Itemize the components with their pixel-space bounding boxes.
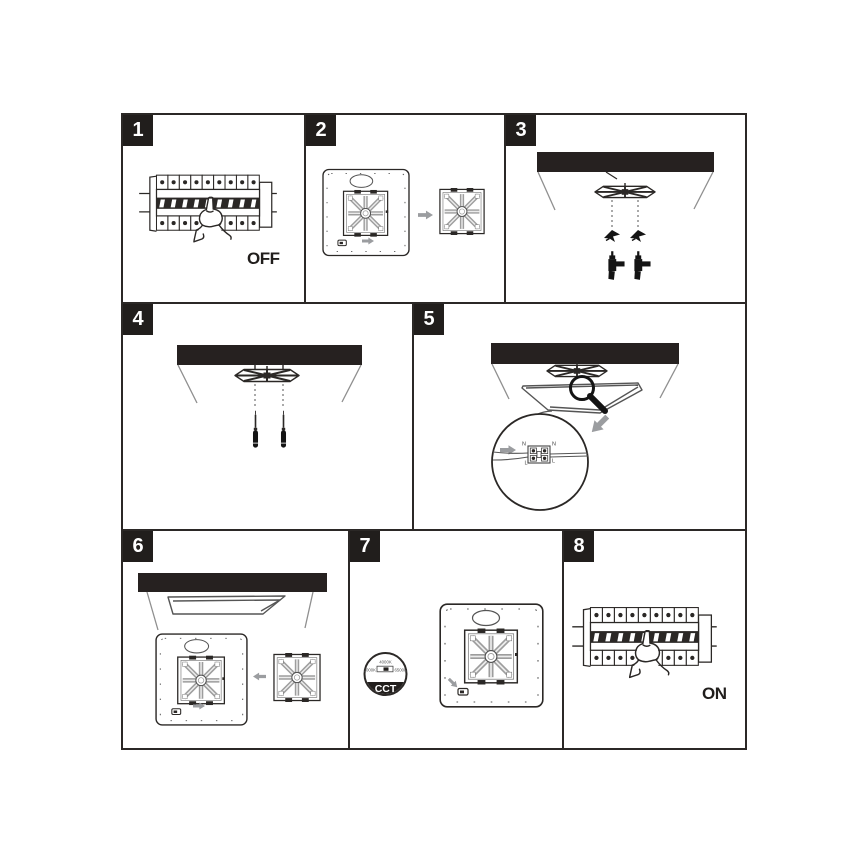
cct-select-illustration: 4000K 3000K 6500K CCT xyxy=(350,531,562,748)
cct-top-option: 4000K xyxy=(379,660,392,665)
mount-panel-illustration xyxy=(123,531,348,748)
step-6-panel: 6 xyxy=(121,529,350,750)
alignment-dashes xyxy=(255,384,283,408)
anchor-screw-icon xyxy=(630,230,646,242)
drill-icon xyxy=(634,251,650,280)
ceiling-icon xyxy=(491,343,679,364)
step-number-badge: 2 xyxy=(306,115,336,146)
installation-manual-sheet: 1 OFF 2 3 xyxy=(0,0,868,868)
cct-left-option: 3000K xyxy=(364,667,377,672)
mounted-panel-icon xyxy=(168,596,285,614)
terminal-label-l-left: L xyxy=(524,461,527,467)
step-number: 1 xyxy=(132,119,143,142)
fix-bracket-illustration xyxy=(123,304,412,529)
terminal-label-l-right: L xyxy=(552,459,555,465)
panel-back-icon xyxy=(440,604,543,707)
ceiling-icon xyxy=(138,573,327,592)
terminal-label-n-right: N xyxy=(552,442,556,448)
circuit-breaker-icon xyxy=(139,175,277,242)
attach-arrow-icon xyxy=(253,673,266,681)
terminal-block-icon xyxy=(528,446,550,463)
drill-icon xyxy=(608,251,624,280)
alignment-dashes xyxy=(612,200,638,228)
anchor-screw-icon xyxy=(604,230,620,242)
ceiling-icon xyxy=(537,152,714,172)
cct-label: CCT xyxy=(375,683,397,695)
step-number-badge: 4 xyxy=(123,304,153,335)
step-4-panel: 4 xyxy=(121,302,414,531)
ceiling-icon xyxy=(177,345,362,365)
step-number: 6 xyxy=(132,535,143,558)
bracket-perspective-icon xyxy=(547,362,607,377)
screwdriver-icon xyxy=(281,411,286,448)
mounting-bracket-icon xyxy=(274,653,320,702)
step-number-badge: 6 xyxy=(123,531,153,562)
step-number: 5 xyxy=(423,308,434,331)
magnifier-icon xyxy=(571,377,606,412)
bracket-perspective-icon xyxy=(235,366,299,382)
terminal-label-n-left: N xyxy=(522,442,526,448)
step-number: 7 xyxy=(359,535,370,558)
step-number: 3 xyxy=(515,119,526,142)
step-number-badge: 5 xyxy=(414,304,444,335)
drill-ceiling-illustration xyxy=(506,115,745,302)
step-number: 8 xyxy=(573,535,584,558)
cct-dial-badge: 4000K 3000K 6500K CCT xyxy=(363,653,408,696)
panel-back-icon xyxy=(156,634,247,725)
marking-line xyxy=(606,172,617,179)
zoom-arrow-icon xyxy=(587,412,612,437)
panel-back-icon xyxy=(323,170,409,256)
circuit-breaker-icon xyxy=(572,608,716,678)
step-2-panel: 2 xyxy=(304,113,506,304)
screwdriver-icon xyxy=(253,411,258,448)
step-1-panel: 1 OFF xyxy=(121,113,306,304)
power-off-label: OFF xyxy=(247,249,280,269)
detach-arrow-icon xyxy=(418,211,433,220)
cct-right-option: 6500K xyxy=(395,667,408,672)
mounting-bracket-icon xyxy=(440,188,484,235)
wiring-illustration: N N L L xyxy=(414,304,745,529)
step-5-panel: 5 xyxy=(412,302,747,531)
bracket-perspective-icon xyxy=(595,183,655,198)
step-number: 4 xyxy=(132,308,143,331)
step-8-panel: 8 ON xyxy=(562,529,747,750)
power-on-label: ON xyxy=(702,684,727,704)
step-number-badge: 3 xyxy=(506,115,536,146)
step-number: 2 xyxy=(315,119,326,142)
step-3-panel: 3 xyxy=(504,113,747,304)
step-number-badge: 7 xyxy=(350,531,380,562)
cct-switch-knob xyxy=(384,667,389,670)
step-7-panel: 7 4000K 3000K 6500K CCT xyxy=(348,529,564,750)
step-number-badge: 1 xyxy=(123,115,153,146)
step-number-badge: 8 xyxy=(564,531,594,562)
breaker-on-illustration xyxy=(564,531,745,748)
